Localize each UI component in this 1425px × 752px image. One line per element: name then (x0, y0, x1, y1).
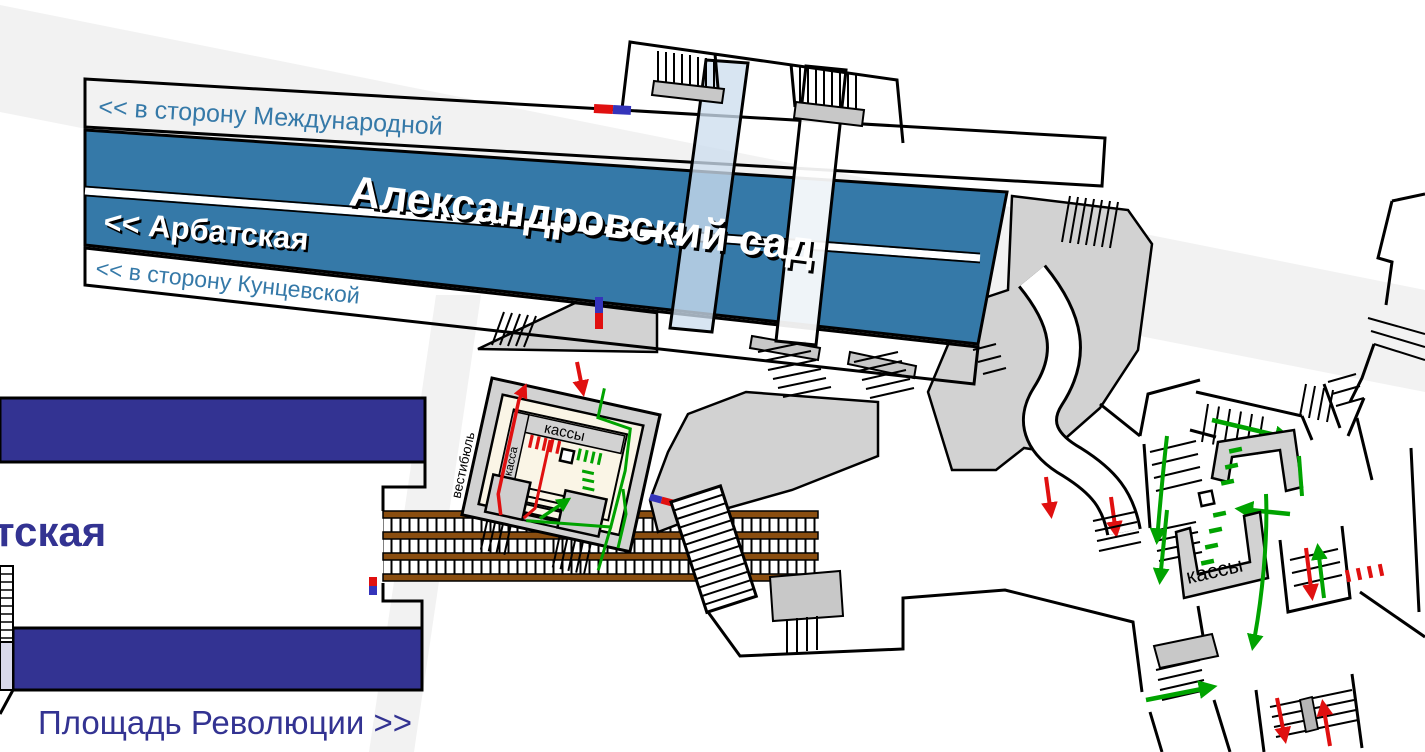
gate-marker (369, 577, 377, 595)
passenger-flow-red-arrow (1323, 704, 1330, 746)
stairs-hatch (1150, 441, 1202, 491)
stair-landing (770, 571, 843, 621)
arbatskaya-platform-band (13, 628, 422, 690)
info-post (560, 449, 574, 463)
exit-passage (0, 642, 13, 690)
wall (0, 690, 13, 714)
stair-box (1280, 526, 1350, 612)
right-edge-passages (1324, 194, 1425, 637)
passenger-flow-green-arrow (1160, 510, 1167, 580)
station-scheme-page: << в сторону Международной << Арбатская … (0, 0, 1425, 752)
passenger-flow-green (1299, 456, 1302, 496)
stair-block (485, 475, 530, 520)
direction-label-ploshchad-revolyutsii: Площадь Революции >> (38, 704, 412, 741)
passenger-flow-green-arrow (1146, 687, 1212, 700)
gate-marker (595, 297, 603, 329)
arbatskaya-station-label-partial: тская (0, 508, 106, 555)
stairs-hatch (787, 616, 817, 653)
stairs-hatch (1290, 549, 1342, 586)
passenger-flow-green-arrow (1318, 548, 1324, 598)
wall (1100, 404, 1140, 436)
station-scheme: << в сторону Международной << Арбатская … (0, 0, 1425, 752)
passenger-flow-red-arrow (1046, 477, 1051, 514)
stairs-hatch (1300, 384, 1333, 422)
arbatskaya-platform-band (0, 398, 425, 462)
turnstiles-red (1345, 564, 1384, 583)
stair-divider (1300, 697, 1318, 732)
info-post (1199, 491, 1214, 506)
gate-marker (594, 104, 631, 115)
stair-block (557, 490, 606, 536)
walls (1324, 194, 1425, 637)
passenger-flow-red-arrow (577, 362, 583, 392)
arbatskaya-line: тская Площадь Революции >> (0, 398, 425, 741)
rail (383, 574, 818, 581)
